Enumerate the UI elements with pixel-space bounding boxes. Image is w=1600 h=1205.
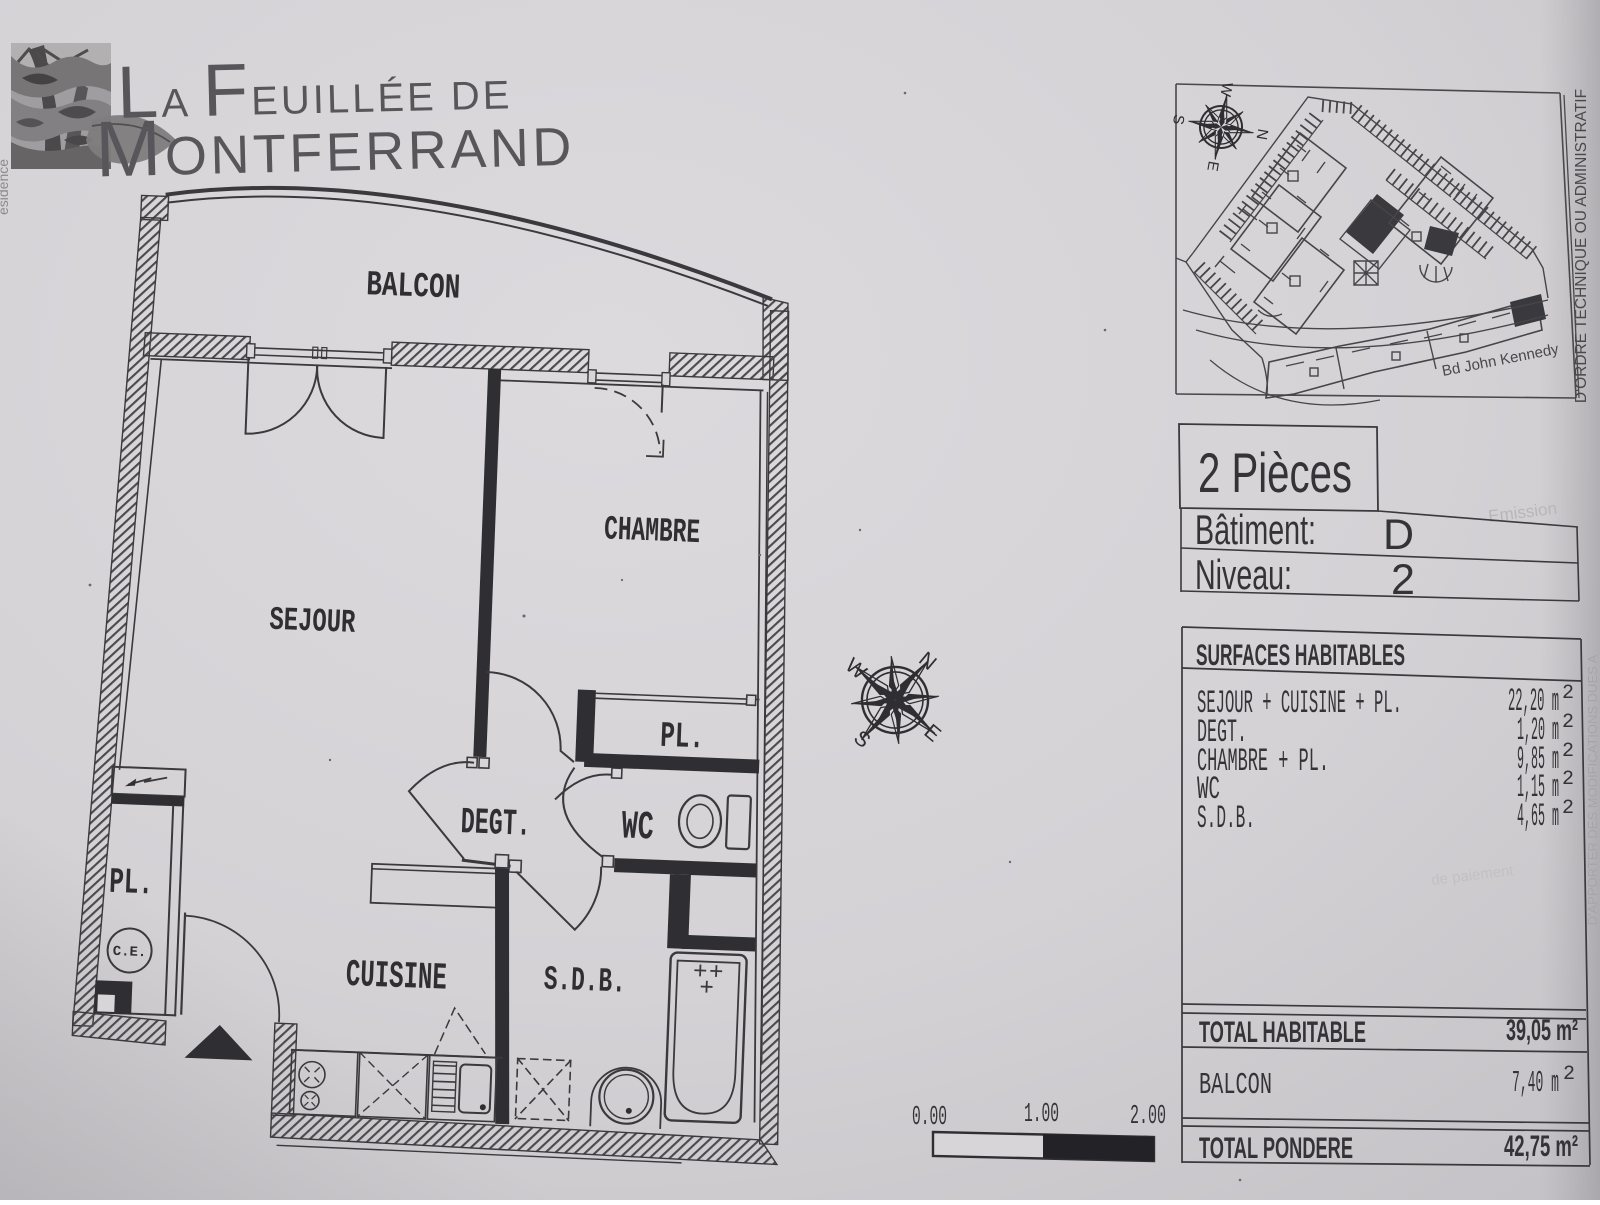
svg-text:Niveau:: Niveau: <box>1195 551 1292 598</box>
svg-text:42,75 m²: 42,75 m² <box>1504 1130 1578 1163</box>
svg-text:1.00: 1.00 <box>1024 1100 1059 1130</box>
svg-text:D'ORDRE TECHNIQUE OU ADMINISTR: D'ORDRE TECHNIQUE OU ADMINISTRATIF <box>1573 89 1590 403</box>
svg-text:0.00: 0.00 <box>912 1103 947 1133</box>
svg-text:PL.: PL. <box>108 862 154 905</box>
svg-text:CHAMBRE: CHAMBRE <box>603 511 700 553</box>
svg-text:2: 2 <box>1562 682 1574 705</box>
svg-text:TOTAL HABITABLE: TOTAL HABITABLE <box>1199 1016 1366 1049</box>
svg-text:DEGT.: DEGT. <box>460 802 532 847</box>
svg-text:BALCON: BALCON <box>366 265 461 309</box>
svg-text:C.E.: C.E. <box>112 944 146 961</box>
svg-text:S.D.B.: S.D.B. <box>1197 800 1255 837</box>
svg-text:BALCON: BALCON <box>1199 1068 1272 1103</box>
svg-text:2: 2 <box>1391 556 1415 604</box>
svg-text:4,65 m: 4,65 m <box>1517 798 1559 835</box>
svg-text:CUISINE: CUISINE <box>345 954 448 1001</box>
svg-text:D'APPORTER DES MODIFICATIONS D: D'APPORTER DES MODIFICATIONS DUES A <box>1585 654 1600 925</box>
svg-text:SURFACES HABITABLES: SURFACES HABITABLES <box>1196 639 1405 672</box>
svg-text:2.00: 2.00 <box>1130 1102 1166 1132</box>
svg-text:2: 2 <box>1562 768 1574 791</box>
svg-text:S.D.B.: S.D.B. <box>543 961 626 1002</box>
svg-text:2: 2 <box>1562 711 1574 734</box>
svg-text:2: 2 <box>1563 1063 1575 1086</box>
svg-text:TOTAL PONDERE: TOTAL PONDERE <box>1199 1132 1353 1165</box>
svg-text:ésidence: ésidence <box>0 159 11 215</box>
svg-text:2 Pièces: 2 Pièces <box>1198 441 1352 504</box>
svg-text:PL.: PL. <box>659 716 705 759</box>
svg-text:39,05 m²: 39,05 m² <box>1506 1014 1578 1047</box>
svg-text:SEJOUR: SEJOUR <box>269 602 356 642</box>
svg-text:2: 2 <box>1562 797 1574 820</box>
svg-text:WC: WC <box>621 805 655 851</box>
svg-text:7,40 m: 7,40 m <box>1512 1066 1559 1101</box>
svg-text:Bâtiment:: Bâtiment: <box>1195 506 1316 553</box>
svg-text:D: D <box>1383 511 1414 559</box>
svg-text:2: 2 <box>1562 740 1574 763</box>
